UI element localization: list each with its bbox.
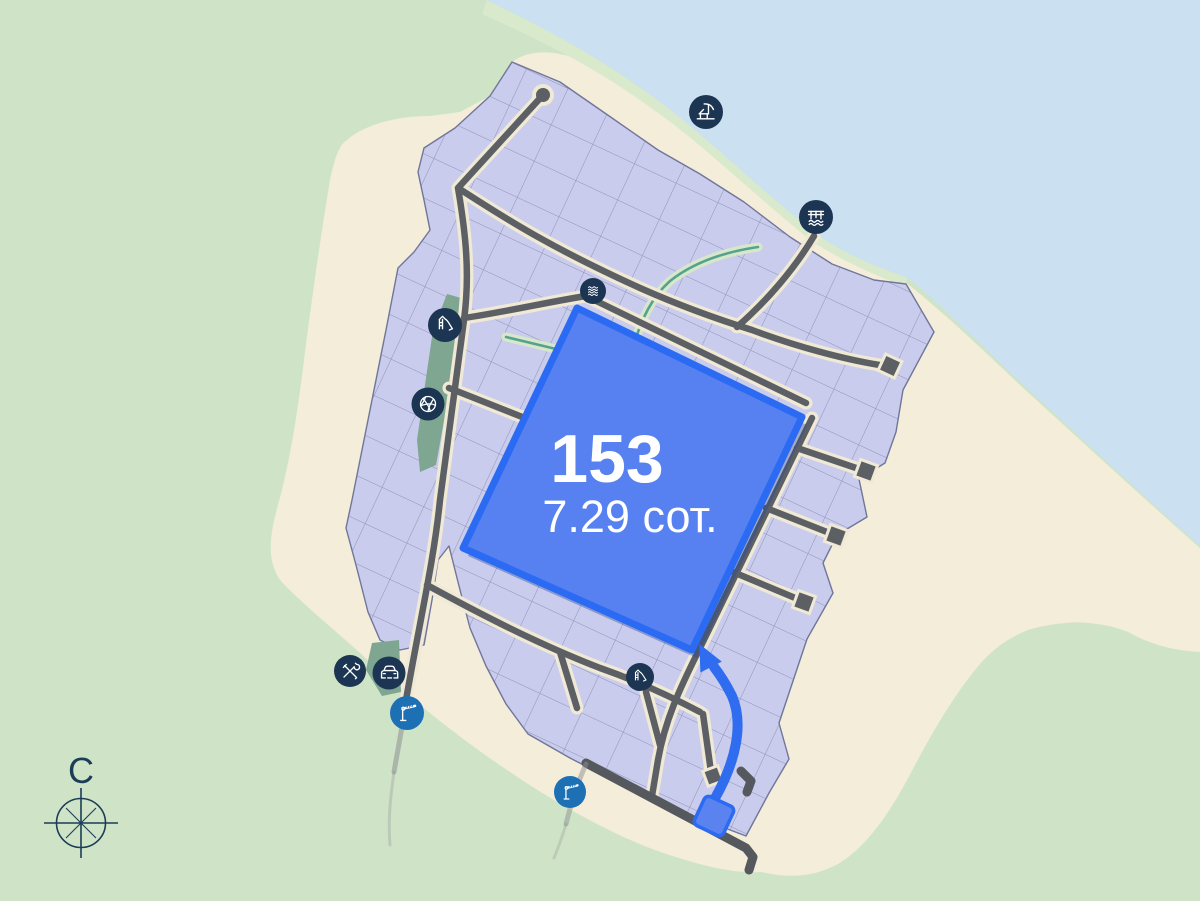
basketball-icon[interactable]	[412, 388, 445, 421]
playground-slide-icon[interactable]	[428, 308, 462, 342]
compass-north-label: С	[68, 750, 94, 791]
selected-plot-area: 7.29 сот.	[542, 491, 717, 542]
barrier-gate-icon-south[interactable]	[554, 776, 586, 808]
car-icon[interactable]	[373, 657, 406, 690]
playground-slide-icon-south[interactable]	[626, 663, 654, 691]
pier-icon[interactable]	[799, 200, 833, 234]
barrier-gate-icon[interactable]	[390, 696, 424, 730]
tools-icon[interactable]	[334, 655, 366, 687]
masterplan-map: 153 7.29 сот.	[0, 0, 1200, 901]
selected-plot-number: 153	[550, 421, 663, 497]
waves-icon[interactable]	[580, 278, 606, 304]
beach-lounger-icon[interactable]	[689, 95, 723, 129]
